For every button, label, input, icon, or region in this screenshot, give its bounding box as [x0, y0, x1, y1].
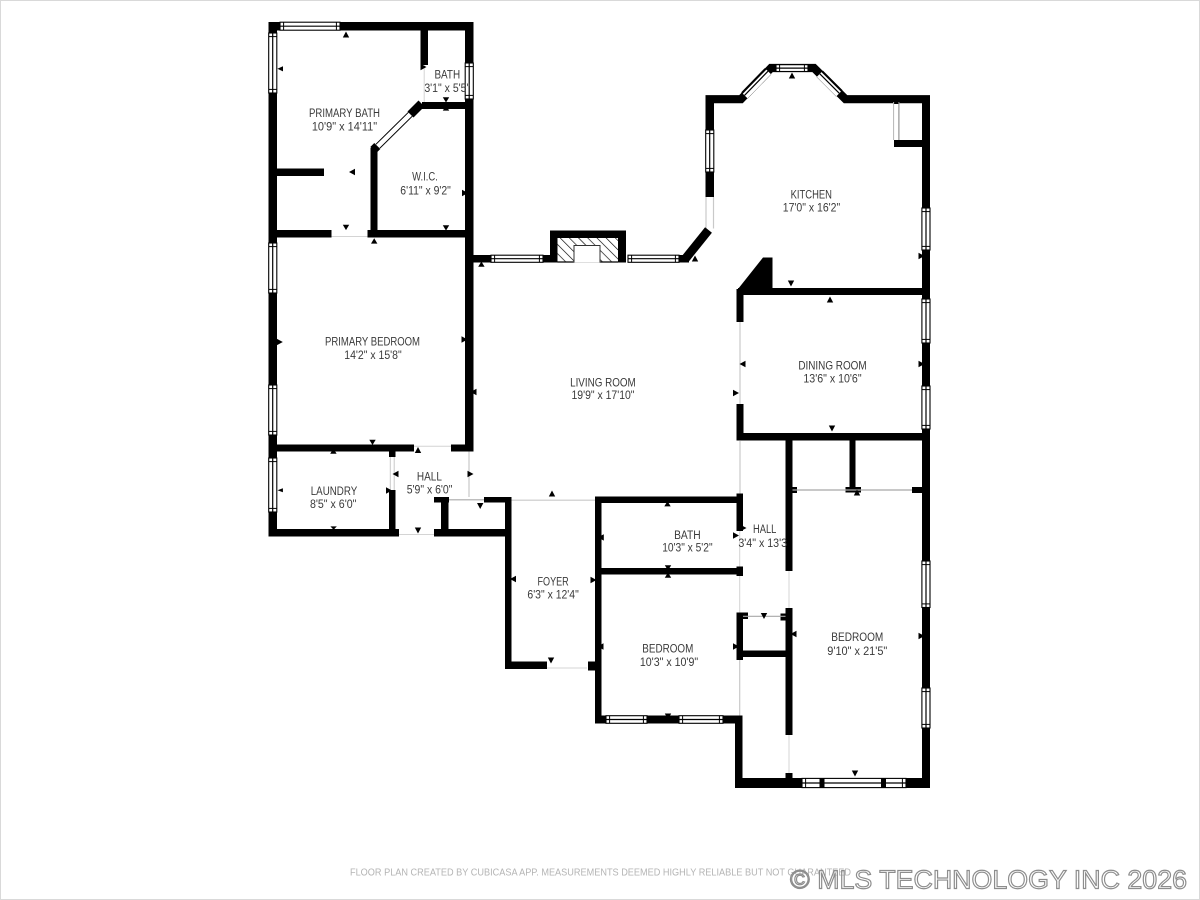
svg-text:10'3" x 5'2": 10'3" x 5'2" [662, 541, 712, 555]
svg-text:17'0" x 16'2": 17'0" x 16'2" [783, 201, 840, 215]
svg-text:3'4" x 13'3: 3'4" x 13'3 [738, 536, 787, 550]
svg-text:13'6" x 10'6": 13'6" x 10'6" [803, 371, 861, 385]
svg-text:8'5" x 6'0": 8'5" x 6'0" [310, 497, 357, 511]
svg-text:6'11" x 9'2": 6'11" x 9'2" [400, 184, 451, 198]
svg-text:HALL: HALL [753, 522, 776, 536]
svg-text:© MLS TECHNOLOGY INC 2026: © MLS TECHNOLOGY INC 2026 [790, 865, 1187, 895]
svg-text:9'10" x 21'5": 9'10" x 21'5" [827, 644, 887, 658]
svg-text:10'3" x 10'9": 10'3" x 10'9" [640, 655, 698, 669]
svg-text:BEDROOM: BEDROOM [642, 642, 693, 656]
svg-text:W.I.C.: W.I.C. [412, 170, 438, 184]
svg-text:BATH: BATH [434, 68, 460, 82]
svg-text:LAUNDRY: LAUNDRY [311, 484, 358, 498]
svg-text:KITCHEN: KITCHEN [791, 187, 832, 201]
svg-text:19'9" x 17'10": 19'9" x 17'10" [572, 388, 635, 402]
svg-text:LIVING ROOM: LIVING ROOM [570, 375, 636, 389]
svg-text:HALL: HALL [417, 470, 442, 484]
svg-text:5'9" x 6'0": 5'9" x 6'0" [407, 483, 453, 497]
svg-text:6'3" x 12'4": 6'3" x 12'4" [527, 587, 578, 601]
svg-text:3'1" x 5'5": 3'1" x 5'5" [424, 81, 470, 95]
svg-text:PRIMARY BEDROOM: PRIMARY BEDROOM [325, 335, 420, 349]
svg-text:DINING ROOM: DINING ROOM [798, 358, 866, 372]
svg-text:14'2" x 15'8": 14'2" x 15'8" [344, 348, 401, 362]
svg-text:PRIMARY BATH: PRIMARY BATH [309, 106, 380, 120]
svg-text:10'9" x 14'11": 10'9" x 14'11" [312, 120, 377, 134]
svg-text:FLOOR PLAN CREATED BY CUBICASA: FLOOR PLAN CREATED BY CUBICASA APP. MEAS… [350, 867, 851, 879]
svg-text:BEDROOM: BEDROOM [831, 630, 883, 644]
